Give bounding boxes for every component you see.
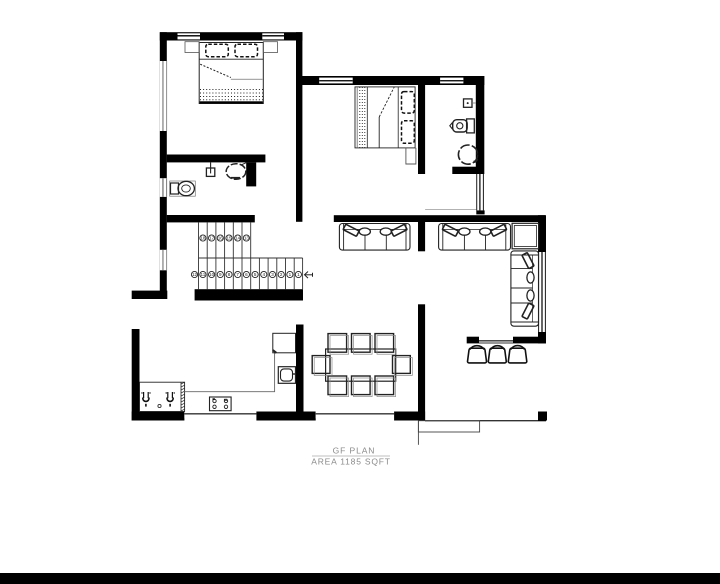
svg-text:17: 17 bbox=[209, 236, 215, 241]
svg-text:4: 4 bbox=[263, 272, 266, 277]
svg-text:7: 7 bbox=[236, 272, 239, 277]
svg-text:15: 15 bbox=[226, 236, 232, 241]
svg-text:AREA 1185 SQFT: AREA 1185 SQFT bbox=[311, 457, 391, 467]
svg-text:1: 1 bbox=[297, 272, 300, 277]
svg-text:18: 18 bbox=[200, 236, 206, 241]
svg-text:16: 16 bbox=[218, 236, 224, 241]
svg-text:8: 8 bbox=[228, 272, 231, 277]
svg-text:3: 3 bbox=[271, 272, 274, 277]
svg-text:11: 11 bbox=[201, 272, 206, 277]
svg-text:5: 5 bbox=[254, 272, 257, 277]
svg-text:12: 12 bbox=[192, 272, 198, 277]
svg-text:GF PLAN: GF PLAN bbox=[333, 446, 376, 456]
svg-text:9: 9 bbox=[219, 272, 222, 277]
svg-text:6: 6 bbox=[245, 272, 248, 277]
svg-text:14: 14 bbox=[235, 236, 241, 241]
svg-text:10: 10 bbox=[209, 272, 215, 277]
svg-text:13: 13 bbox=[244, 236, 250, 241]
svg-text:1: 1 bbox=[289, 272, 292, 277]
svg-text:2: 2 bbox=[280, 272, 283, 277]
